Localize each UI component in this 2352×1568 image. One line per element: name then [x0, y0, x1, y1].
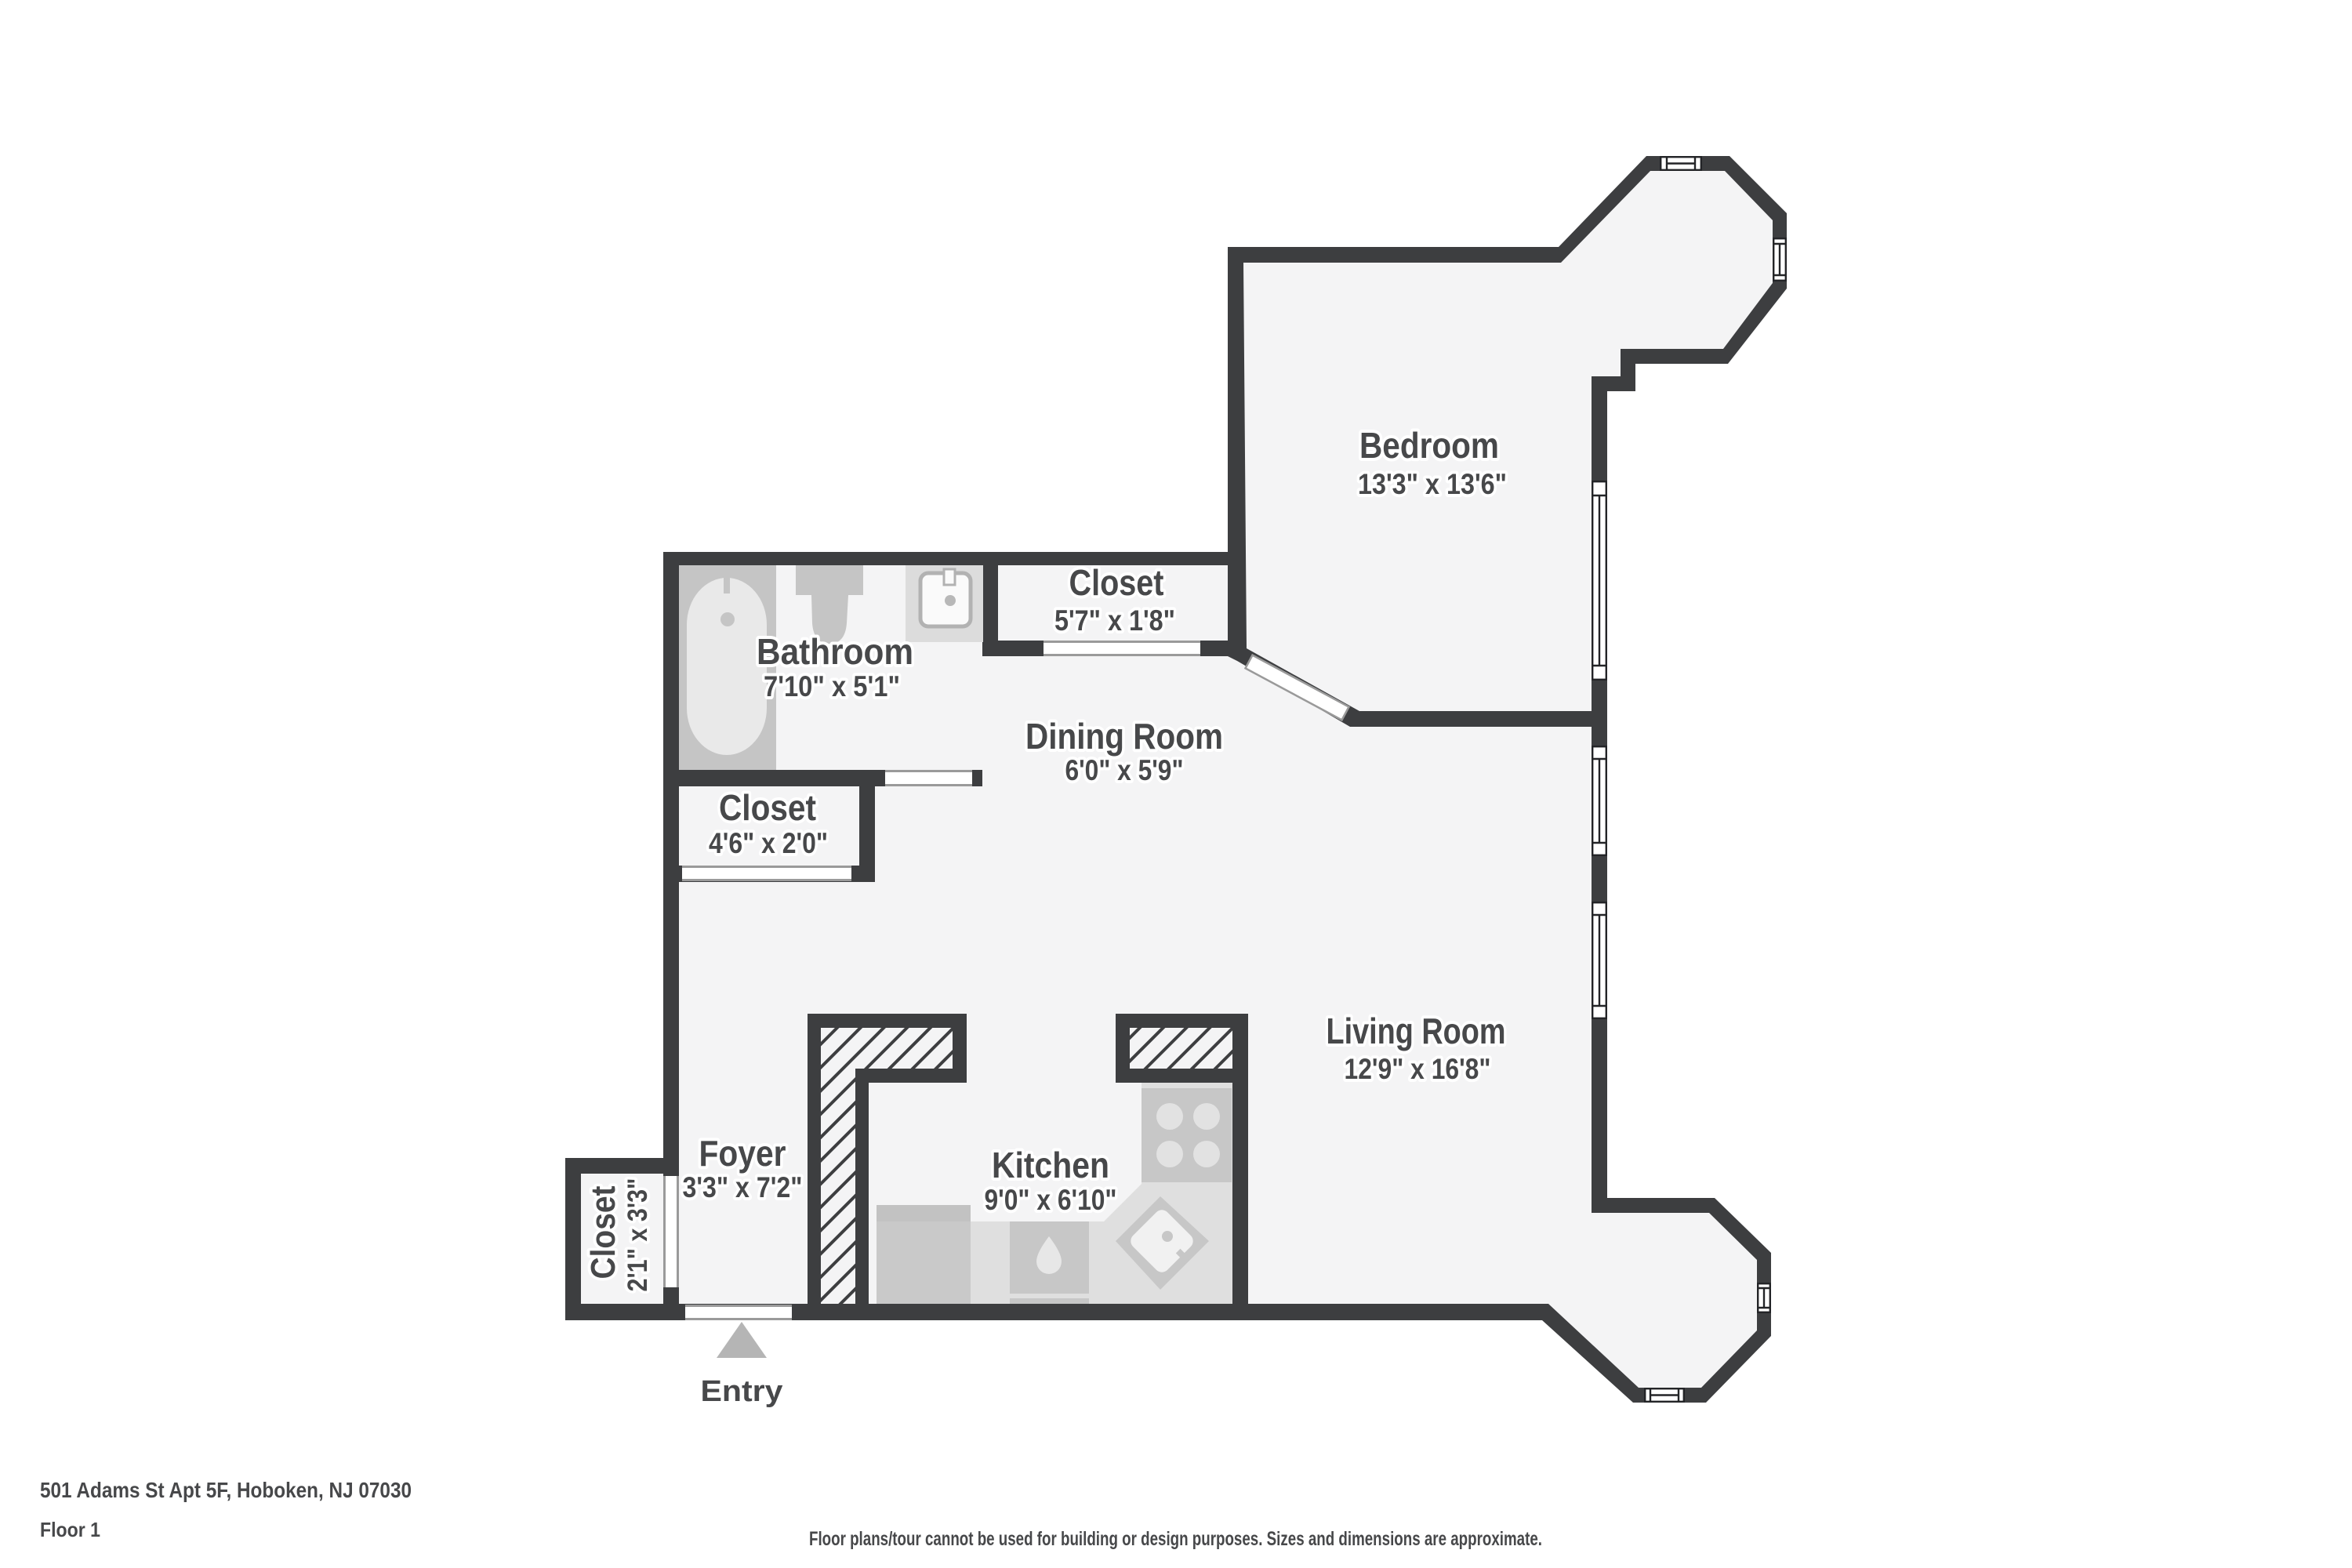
svg-text:Bedroom: Bedroom: [1359, 425, 1499, 466]
svg-text:13'3" x 13'6": 13'3" x 13'6": [1358, 468, 1507, 500]
svg-text:Bathroom: Bathroom: [757, 631, 913, 672]
svg-text:501 Adams St Apt 5F, Hoboken,: 501 Adams St Apt 5F, Hoboken, NJ 07030: [40, 1478, 412, 1502]
svg-text:Dining Room: Dining Room: [1025, 716, 1223, 757]
svg-text:Entry: Entry: [701, 1375, 783, 1408]
svg-text:6'0" x 5'9": 6'0" x 5'9": [1065, 754, 1184, 786]
svg-text:12'9" x 16'8": 12'9" x 16'8": [1345, 1053, 1491, 1085]
svg-text:Floor plans/tour cannot be use: Floor plans/tour cannot be used for buil…: [809, 1528, 1542, 1550]
svg-text:Floor 1: Floor 1: [40, 1518, 100, 1541]
svg-text:Kitchen: Kitchen: [992, 1145, 1109, 1185]
svg-text:Closet: Closet: [1069, 562, 1164, 603]
svg-text:Living Room: Living Room: [1327, 1011, 1506, 1051]
svg-text:Foyer: Foyer: [699, 1133, 786, 1174]
svg-text:7'10" x 5'1": 7'10" x 5'1": [764, 670, 900, 702]
svg-text:3'3" x 7'2": 3'3" x 7'2": [683, 1171, 803, 1203]
svg-text:9'0" x 6'10": 9'0" x 6'10": [985, 1184, 1117, 1216]
svg-text:Closet: Closet: [584, 1185, 622, 1279]
svg-text:5'7" x 1'8": 5'7" x 1'8": [1054, 604, 1175, 637]
svg-text:Closet: Closet: [719, 787, 816, 828]
svg-text:4'6" x 2'0": 4'6" x 2'0": [709, 827, 828, 859]
svg-text:2'1" x 3'3": 2'1" x 3'3": [622, 1178, 653, 1292]
